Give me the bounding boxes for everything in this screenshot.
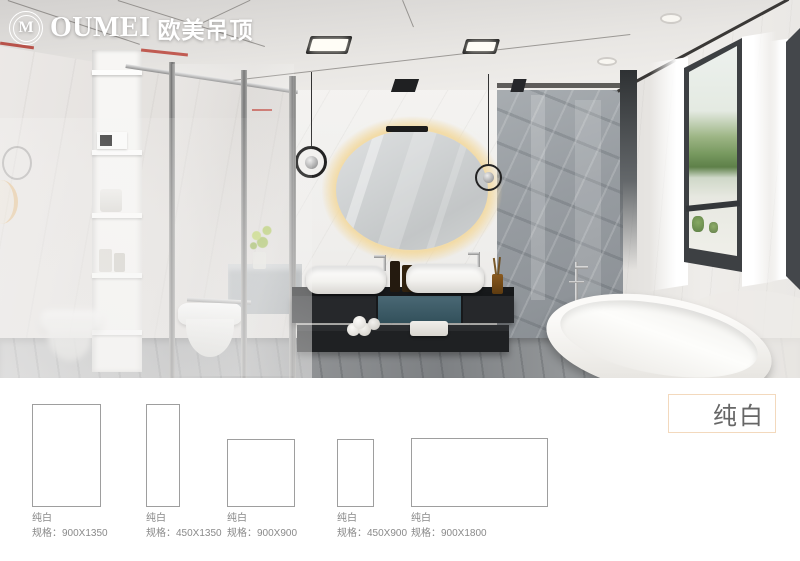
recessed-panel-light — [305, 36, 352, 54]
wall-reflection — [531, 95, 545, 300]
swatch-label: 纯白 规格：450X900 — [337, 511, 407, 541]
panel-swatch-900x1350 — [32, 404, 101, 507]
pendant-cord — [488, 74, 489, 166]
sink-left — [306, 266, 386, 294]
swatch-spec: 规格：450X900 — [337, 526, 407, 541]
swatch-color-name: 纯白 — [32, 511, 108, 526]
recessed-round-light — [660, 13, 682, 24]
recessed-panel-light — [462, 39, 500, 54]
mirror-reflection — [371, 130, 438, 250]
swatch-color-name: 纯白 — [227, 511, 297, 526]
wall-corner-shadow — [620, 70, 637, 270]
swatch-spec: 规格：900X1350 — [32, 526, 108, 541]
panel-swatch-900x900 — [227, 439, 295, 507]
shelf-board — [92, 70, 142, 75]
vanity-teal-drawer — [378, 296, 461, 323]
swatch-label: 纯白 规格：900X900 — [227, 511, 297, 541]
brand-logo-icon: M — [9, 11, 43, 45]
swatch-label: 纯白 规格：900X1350 — [32, 511, 108, 541]
panel-swatch-450x900 — [337, 439, 374, 507]
panel-swatch-900x1800 — [411, 438, 548, 507]
window-view-plant — [692, 216, 704, 232]
brand-logo-letter: M — [13, 15, 40, 42]
product-title-box: 纯白 — [668, 394, 776, 433]
brand-name-en: OUMEI — [50, 12, 151, 44]
ceiling-seam — [402, 0, 414, 27]
swatch-color-name: 纯白 — [146, 511, 222, 526]
brand-logo: M OUMEI 欧美吊顶 — [9, 11, 254, 45]
window-view — [689, 46, 737, 262]
mirror-mount-bar — [386, 126, 428, 132]
window-frame-right — [786, 28, 800, 290]
swatch-color-name: 纯白 — [337, 511, 407, 526]
swatch-label: 纯白 规格：900X1800 — [411, 511, 487, 541]
drawer-seam — [461, 296, 463, 323]
rolled-towels — [347, 318, 381, 336]
tub-filler-spout — [575, 266, 588, 269]
vanity-cabinet — [292, 296, 514, 323]
window-glow-band — [650, 57, 688, 291]
catalog-page: M OUMEI 欧美吊顶 纯白 规格：900X1350 纯白 规格：450X13… — [0, 0, 800, 561]
faucet-right-spout — [468, 252, 479, 255]
sink-right — [406, 264, 484, 293]
faucet-left-spout — [374, 255, 385, 258]
window-glow-band — [770, 39, 788, 282]
product-title: 纯白 — [713, 396, 765, 431]
panel-swatch-450x1350 — [146, 404, 180, 507]
tub-filler-handle — [569, 281, 584, 283]
pendant-bulb — [483, 172, 494, 183]
bathroom-photo: M OUMEI 欧美吊顶 — [0, 0, 800, 378]
swatch-color-name: 纯白 — [411, 511, 487, 526]
pendant-light-right — [475, 164, 502, 191]
steam-fog — [0, 118, 312, 378]
swatch-spec: 规格：900X900 — [227, 526, 297, 541]
swatch-label: 纯白 规格：450X1350 — [146, 511, 222, 541]
folded-towels — [410, 321, 448, 336]
swatch-spec: 规格：900X1800 — [411, 526, 487, 541]
swatch-spec: 规格：450X1350 — [146, 526, 222, 541]
brand-name-cn: 欧美吊顶 — [158, 11, 254, 45]
reed-diffuser — [492, 274, 503, 294]
amber-bottle — [390, 261, 400, 292]
vanity-lower-shelf — [297, 331, 509, 352]
window-view-plant — [709, 222, 718, 233]
ceiling-vent — [391, 79, 419, 92]
recessed-round-light — [597, 57, 617, 66]
round-mirror — [336, 130, 488, 250]
